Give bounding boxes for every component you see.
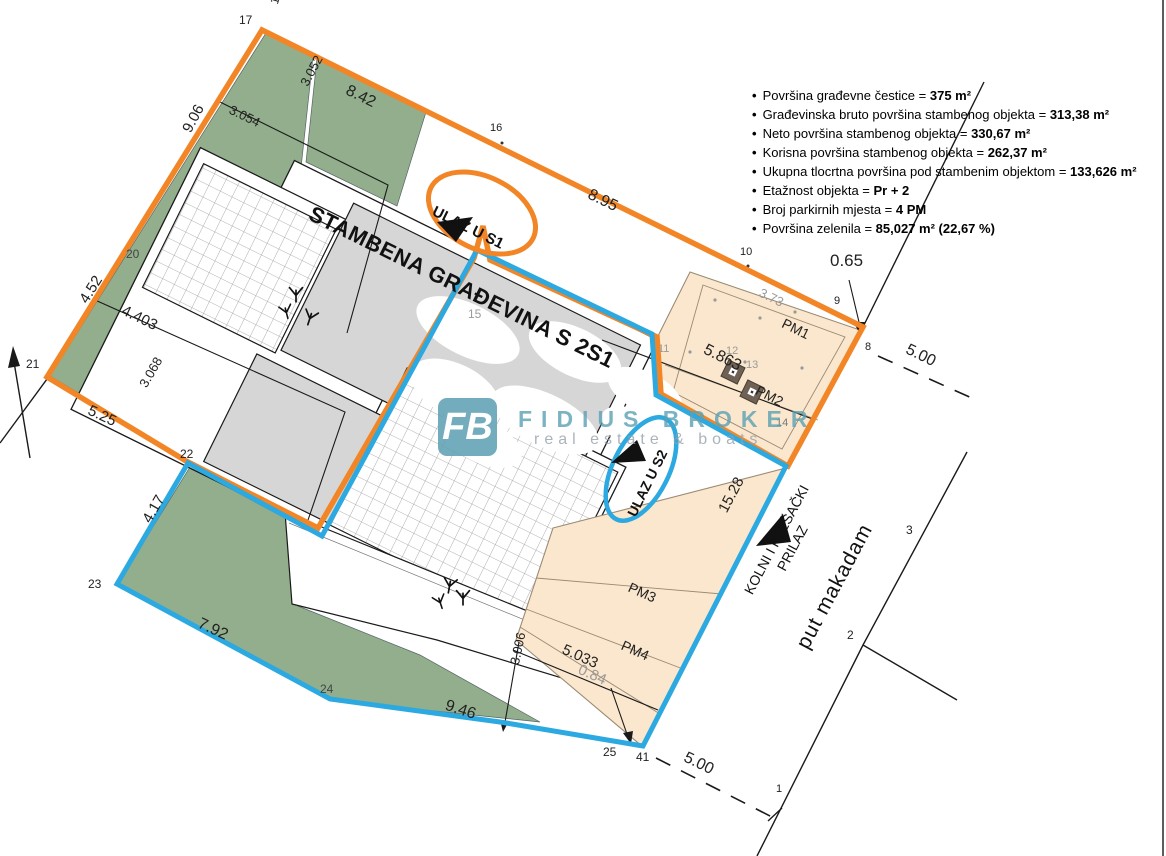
legend-item: Površina zelenila = 85,027 m² (22,67 %) [752,221,1166,238]
legend-list: Površina građevne čestice = 375 m² Građe… [752,88,1166,238]
legend-item: Etažnost objekta = Pr + 2 [752,183,1166,200]
plan-label: 0.65 [830,252,863,269]
plan-label: 13 [746,360,758,371]
plan-label: 1 [776,784,782,795]
legend-item: Korisna površina stambenog objekta = 262… [752,145,1166,162]
legend-item: Neto površina stambenog objekta = 330,67… [752,126,1166,143]
plan-label: 22 [180,448,193,460]
north-arrow [0,346,50,458]
plan-label: 20 [126,248,139,260]
plan-label: 25 [603,746,616,758]
plan-label: 11 [658,344,669,355]
plan-label: 10 [740,247,752,258]
legend-item: Površina građevne čestice = 375 m² [752,88,1166,105]
plan-label: 9 [834,296,840,307]
plan-label: 15 [468,308,481,320]
plan-label: 23 [88,578,101,590]
legend-item: Građevinska bruto površina stambenog obj… [752,107,1166,124]
plan-label: 3 [906,524,913,536]
property-data-legend: Površina građevne čestice = 375 m² Građe… [752,88,1166,240]
plan-label: 17 [239,14,252,26]
plan-label: 21 [26,358,39,370]
legend-item: Broj parkirnih mjesta = 4 PM [752,202,1166,219]
plan-label: 41 [636,751,649,763]
plan-label: 2 [847,629,854,641]
parking-area-upper [657,272,860,464]
site-plan: STAMBENA GRAĐEVINA S 2S1 ULAZ U S1 ULAZ … [0,0,1166,856]
plan-label: 8 [865,342,871,353]
legend-item: Ukupna tlocrtna površina pod stambenim o… [752,164,1166,181]
plan-label: 24 [320,683,333,695]
plan-label: 14 [776,418,788,429]
plan-label: 16 [490,123,502,134]
